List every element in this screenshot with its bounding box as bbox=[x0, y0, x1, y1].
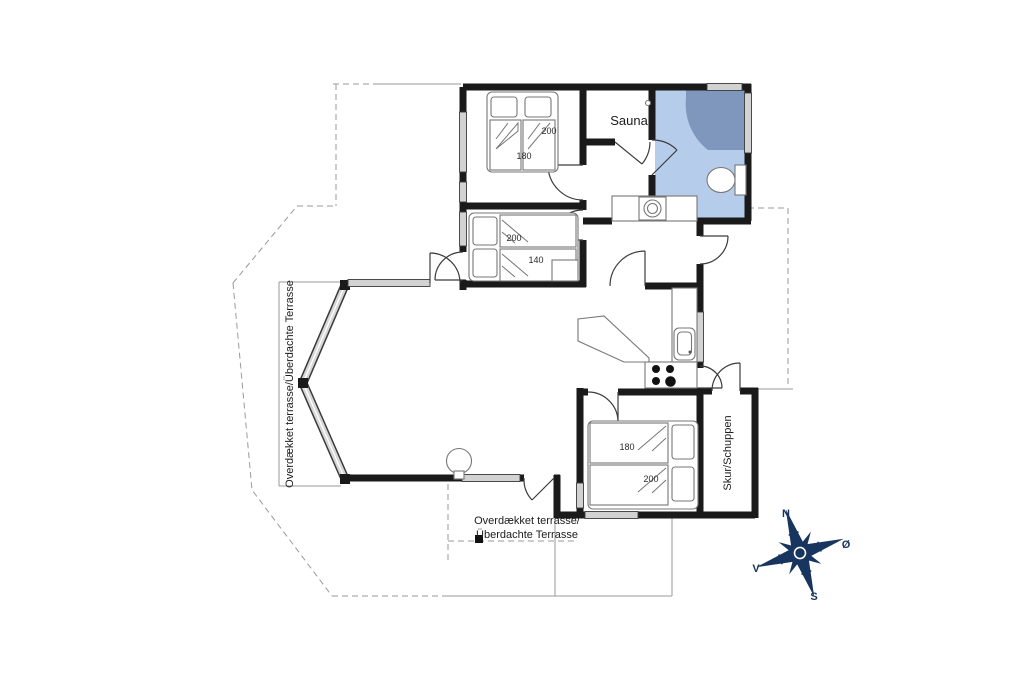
bay-window-centerline bbox=[303, 285, 345, 479]
dashed-west-boundary bbox=[233, 84, 443, 596]
terrace-south-label-line2: Überdachte Terrasse bbox=[476, 529, 578, 541]
bed-middle-length-label: 200 bbox=[506, 233, 521, 243]
window-living-north bbox=[348, 280, 430, 287]
window-bedroom1-west-a bbox=[460, 112, 467, 172]
kitchen-counter-angled bbox=[578, 316, 649, 362]
toilet-tank bbox=[735, 165, 746, 195]
terrace-south-label-line1: Overdækket terrasse/ bbox=[474, 515, 581, 527]
kitchen bbox=[578, 288, 697, 388]
door-bedroom3 bbox=[588, 392, 618, 422]
toilet bbox=[707, 165, 746, 195]
door-shed bbox=[712, 363, 740, 391]
pillow bbox=[525, 97, 551, 117]
bed-middle-width-label: 140 bbox=[528, 255, 543, 265]
window-bedroom3-south bbox=[585, 512, 638, 519]
window-living-south bbox=[462, 475, 520, 482]
mattress bbox=[490, 120, 521, 170]
faucet bbox=[689, 351, 692, 354]
pillow bbox=[473, 217, 497, 245]
compass-label-north: N bbox=[782, 508, 790, 520]
wood-stove-body bbox=[447, 449, 472, 474]
door-living-corridor bbox=[610, 251, 645, 286]
window-bedroom1-west-b bbox=[460, 182, 467, 202]
window-bedroom3-west bbox=[577, 483, 584, 508]
mattress bbox=[590, 465, 668, 505]
door-east-terrace bbox=[700, 366, 722, 388]
bay-windows bbox=[298, 280, 350, 484]
compass-label-south: S bbox=[810, 591, 817, 603]
window-bedroom2-west bbox=[460, 212, 467, 246]
door-entrance-east bbox=[700, 236, 728, 264]
bed-bottom-bedroom bbox=[588, 421, 698, 509]
window-bathroom-east bbox=[745, 93, 752, 153]
pillow bbox=[491, 97, 517, 117]
bay-window-edge bbox=[303, 285, 345, 479]
compass-label-east: Ø bbox=[842, 539, 851, 551]
shed-label: Skur/Schuppen bbox=[722, 415, 734, 490]
bay-window-glass bbox=[303, 285, 345, 479]
window-north bbox=[707, 84, 742, 91]
bed-bottom-length-label: 200 bbox=[643, 474, 658, 484]
wood-stove-flue bbox=[454, 471, 464, 479]
compass-label-west: V bbox=[752, 563, 760, 575]
pillow bbox=[473, 249, 497, 277]
laundry-counter bbox=[612, 196, 697, 221]
floorplan-canvas: Sauna Skur/Schuppen Overdækket terrasse/… bbox=[0, 0, 1024, 682]
door-sauna bbox=[615, 142, 650, 164]
washing-machine-door bbox=[648, 204, 658, 214]
terrace-west-label: Overdækket terrasse/Überdachte Terrasse bbox=[284, 280, 296, 488]
pillow bbox=[672, 467, 694, 501]
door-living-south bbox=[524, 478, 554, 500]
bed-top-width-label: 180 bbox=[516, 151, 531, 161]
pillow bbox=[672, 425, 694, 459]
nightstand bbox=[552, 260, 578, 281]
sauna-label: Sauna bbox=[610, 113, 648, 128]
compass-rose: N Ø V S bbox=[742, 495, 858, 611]
bay-joint-left bbox=[298, 378, 308, 388]
compass-star bbox=[742, 495, 858, 611]
bed-bottom-width-label: 180 bbox=[619, 442, 634, 452]
dashed-east-boundary bbox=[748, 208, 788, 386]
bed-middle-bedroom bbox=[469, 213, 578, 281]
toilet-bowl bbox=[707, 168, 735, 193]
floorplan-svg: Sauna Skur/Schuppen Overdækket terrasse/… bbox=[0, 0, 1024, 682]
bed-top-length-label: 200 bbox=[541, 126, 556, 136]
vent-symbol bbox=[646, 101, 651, 106]
